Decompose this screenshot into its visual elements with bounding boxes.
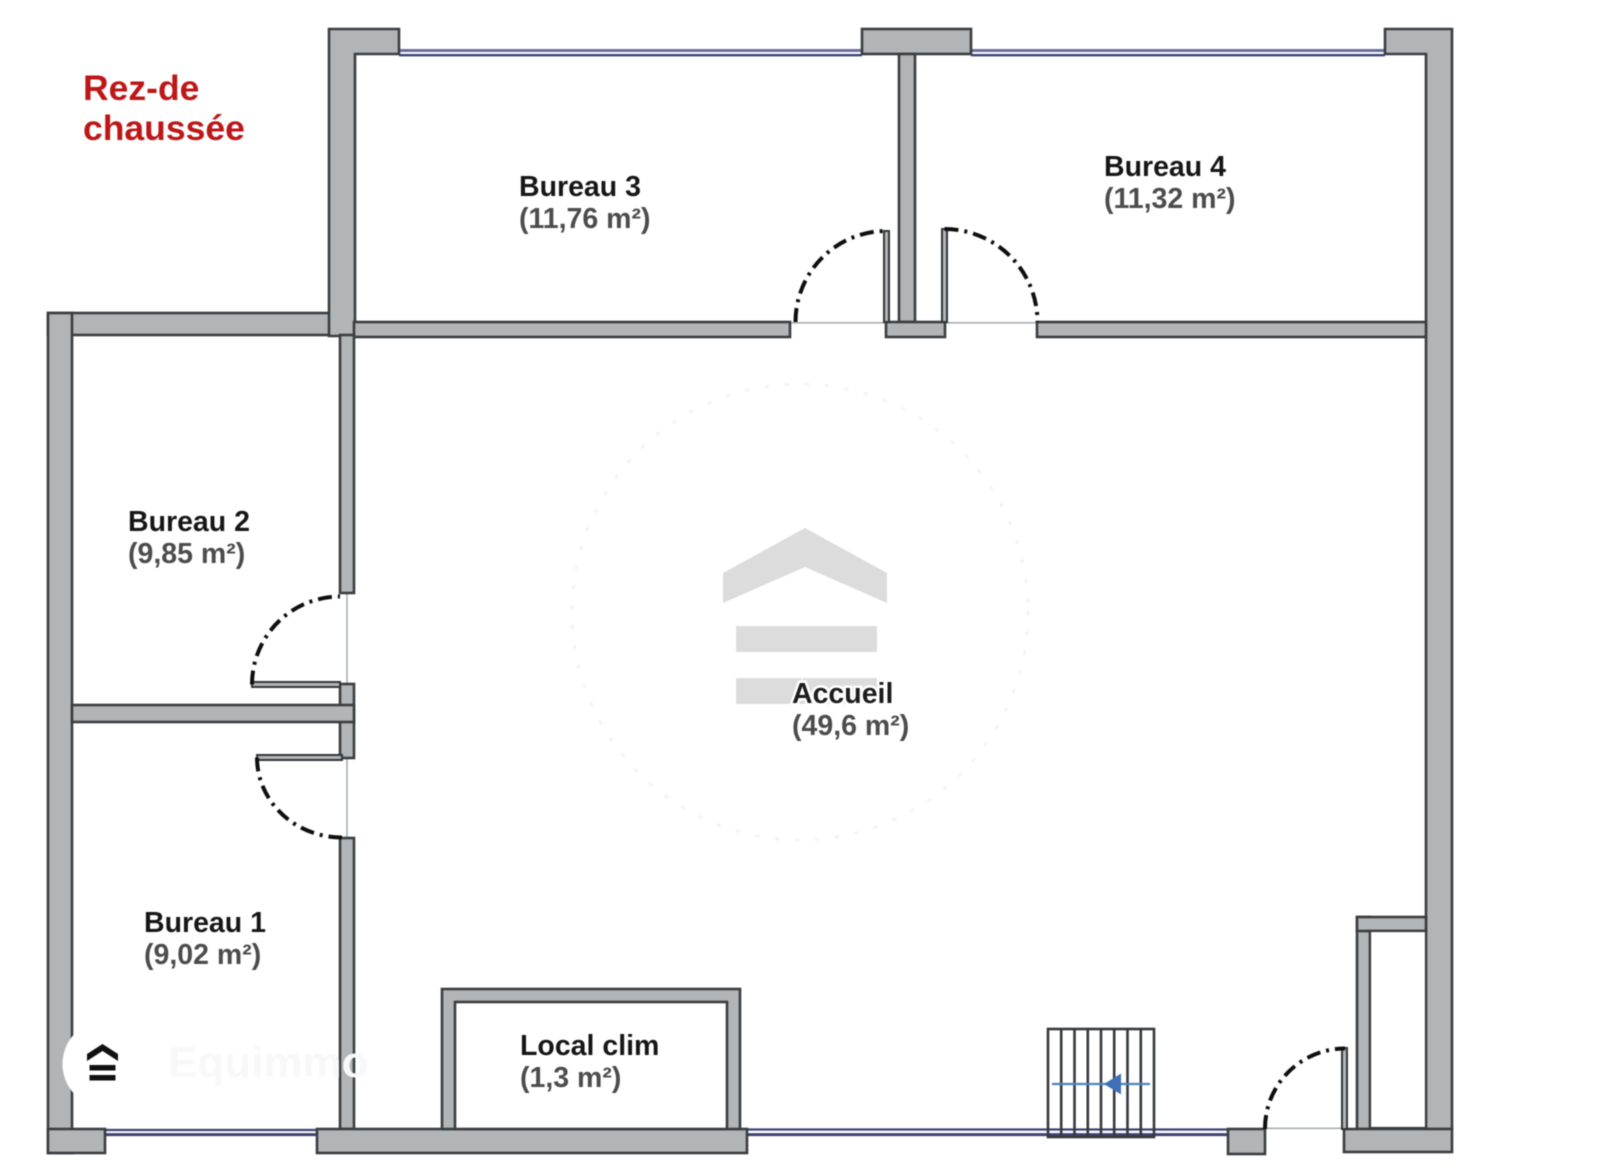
svg-text:Accueil: Accueil	[792, 678, 893, 710]
svg-text:(9,02 m²): (9,02 m²)	[144, 939, 261, 971]
svg-text:Bureau 3: Bureau 3	[519, 171, 641, 203]
svg-text:chaussée: chaussée	[83, 108, 245, 148]
svg-text:Bureau 2: Bureau 2	[128, 506, 250, 538]
svg-text:Rez-de: Rez-de	[83, 68, 199, 108]
svg-text:Bureau 4: Bureau 4	[1104, 151, 1226, 183]
svg-text:(11,76 m²): (11,76 m²)	[519, 203, 650, 235]
svg-text:(49,6 m²): (49,6 m²)	[792, 710, 909, 742]
svg-text:Local clim: Local clim	[520, 1030, 659, 1062]
svg-text:(11,32 m²): (11,32 m²)	[1104, 183, 1235, 215]
svg-text:Equimmo: Equimmo	[168, 1038, 368, 1087]
svg-text:(9,85 m²): (9,85 m²)	[128, 538, 245, 570]
svg-text:Bureau 1: Bureau 1	[144, 907, 266, 939]
svg-text:(1,3 m²): (1,3 m²)	[520, 1062, 621, 1094]
